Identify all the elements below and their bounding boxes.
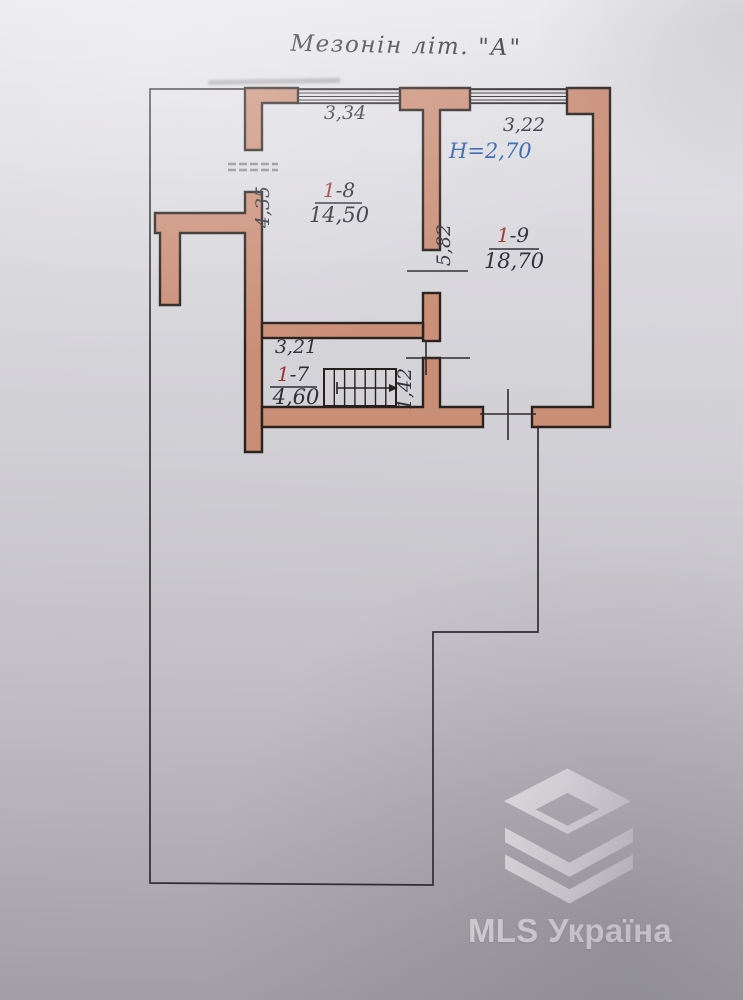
window-symbol-left-wall <box>228 164 278 170</box>
wall-top-left-corner <box>245 88 298 150</box>
floorplan-photo-page: Мезонін літ. "А" <box>0 0 743 1000</box>
room-label-1-9: 1-9 18,70 <box>484 223 544 273</box>
room-number: 1-7 <box>277 362 309 386</box>
ceiling-height-label: H=2,70 <box>448 139 532 163</box>
room-area: 4,60 <box>272 385 320 409</box>
dim-inner-wall: 5,82 <box>433 224 455 266</box>
dim-room8-left-wall: 4,35 <box>252 186 274 229</box>
mls-cube-logo-icon <box>503 768 636 904</box>
room-number: 1-9 <box>497 223 529 247</box>
logo-diamond-ring <box>504 768 631 833</box>
room-number: 1-8 <box>323 178 355 202</box>
dim-room9-width: 3,22 <box>503 114 545 136</box>
room-area: 18,70 <box>484 249 544 273</box>
dim-room7-width: 3,21 <box>275 336 317 358</box>
dim-stair-opening: 1,42 <box>394 368 416 410</box>
watermark-brand-text: MLS Україна <box>468 912 672 950</box>
wall-divider-middle-segment <box>423 293 440 341</box>
room-area: 14,50 <box>309 203 369 227</box>
wall-left-with-wing <box>155 192 262 452</box>
logo-chevron-bottom <box>505 854 633 903</box>
room-label-1-7: 1-7 4,60 <box>270 362 319 409</box>
room-label-1-8: 1-8 14,50 <box>309 178 369 227</box>
window-band-room9 <box>470 89 567 103</box>
dim-room8-width: 3,34 <box>324 102 366 124</box>
staircase <box>324 369 398 406</box>
